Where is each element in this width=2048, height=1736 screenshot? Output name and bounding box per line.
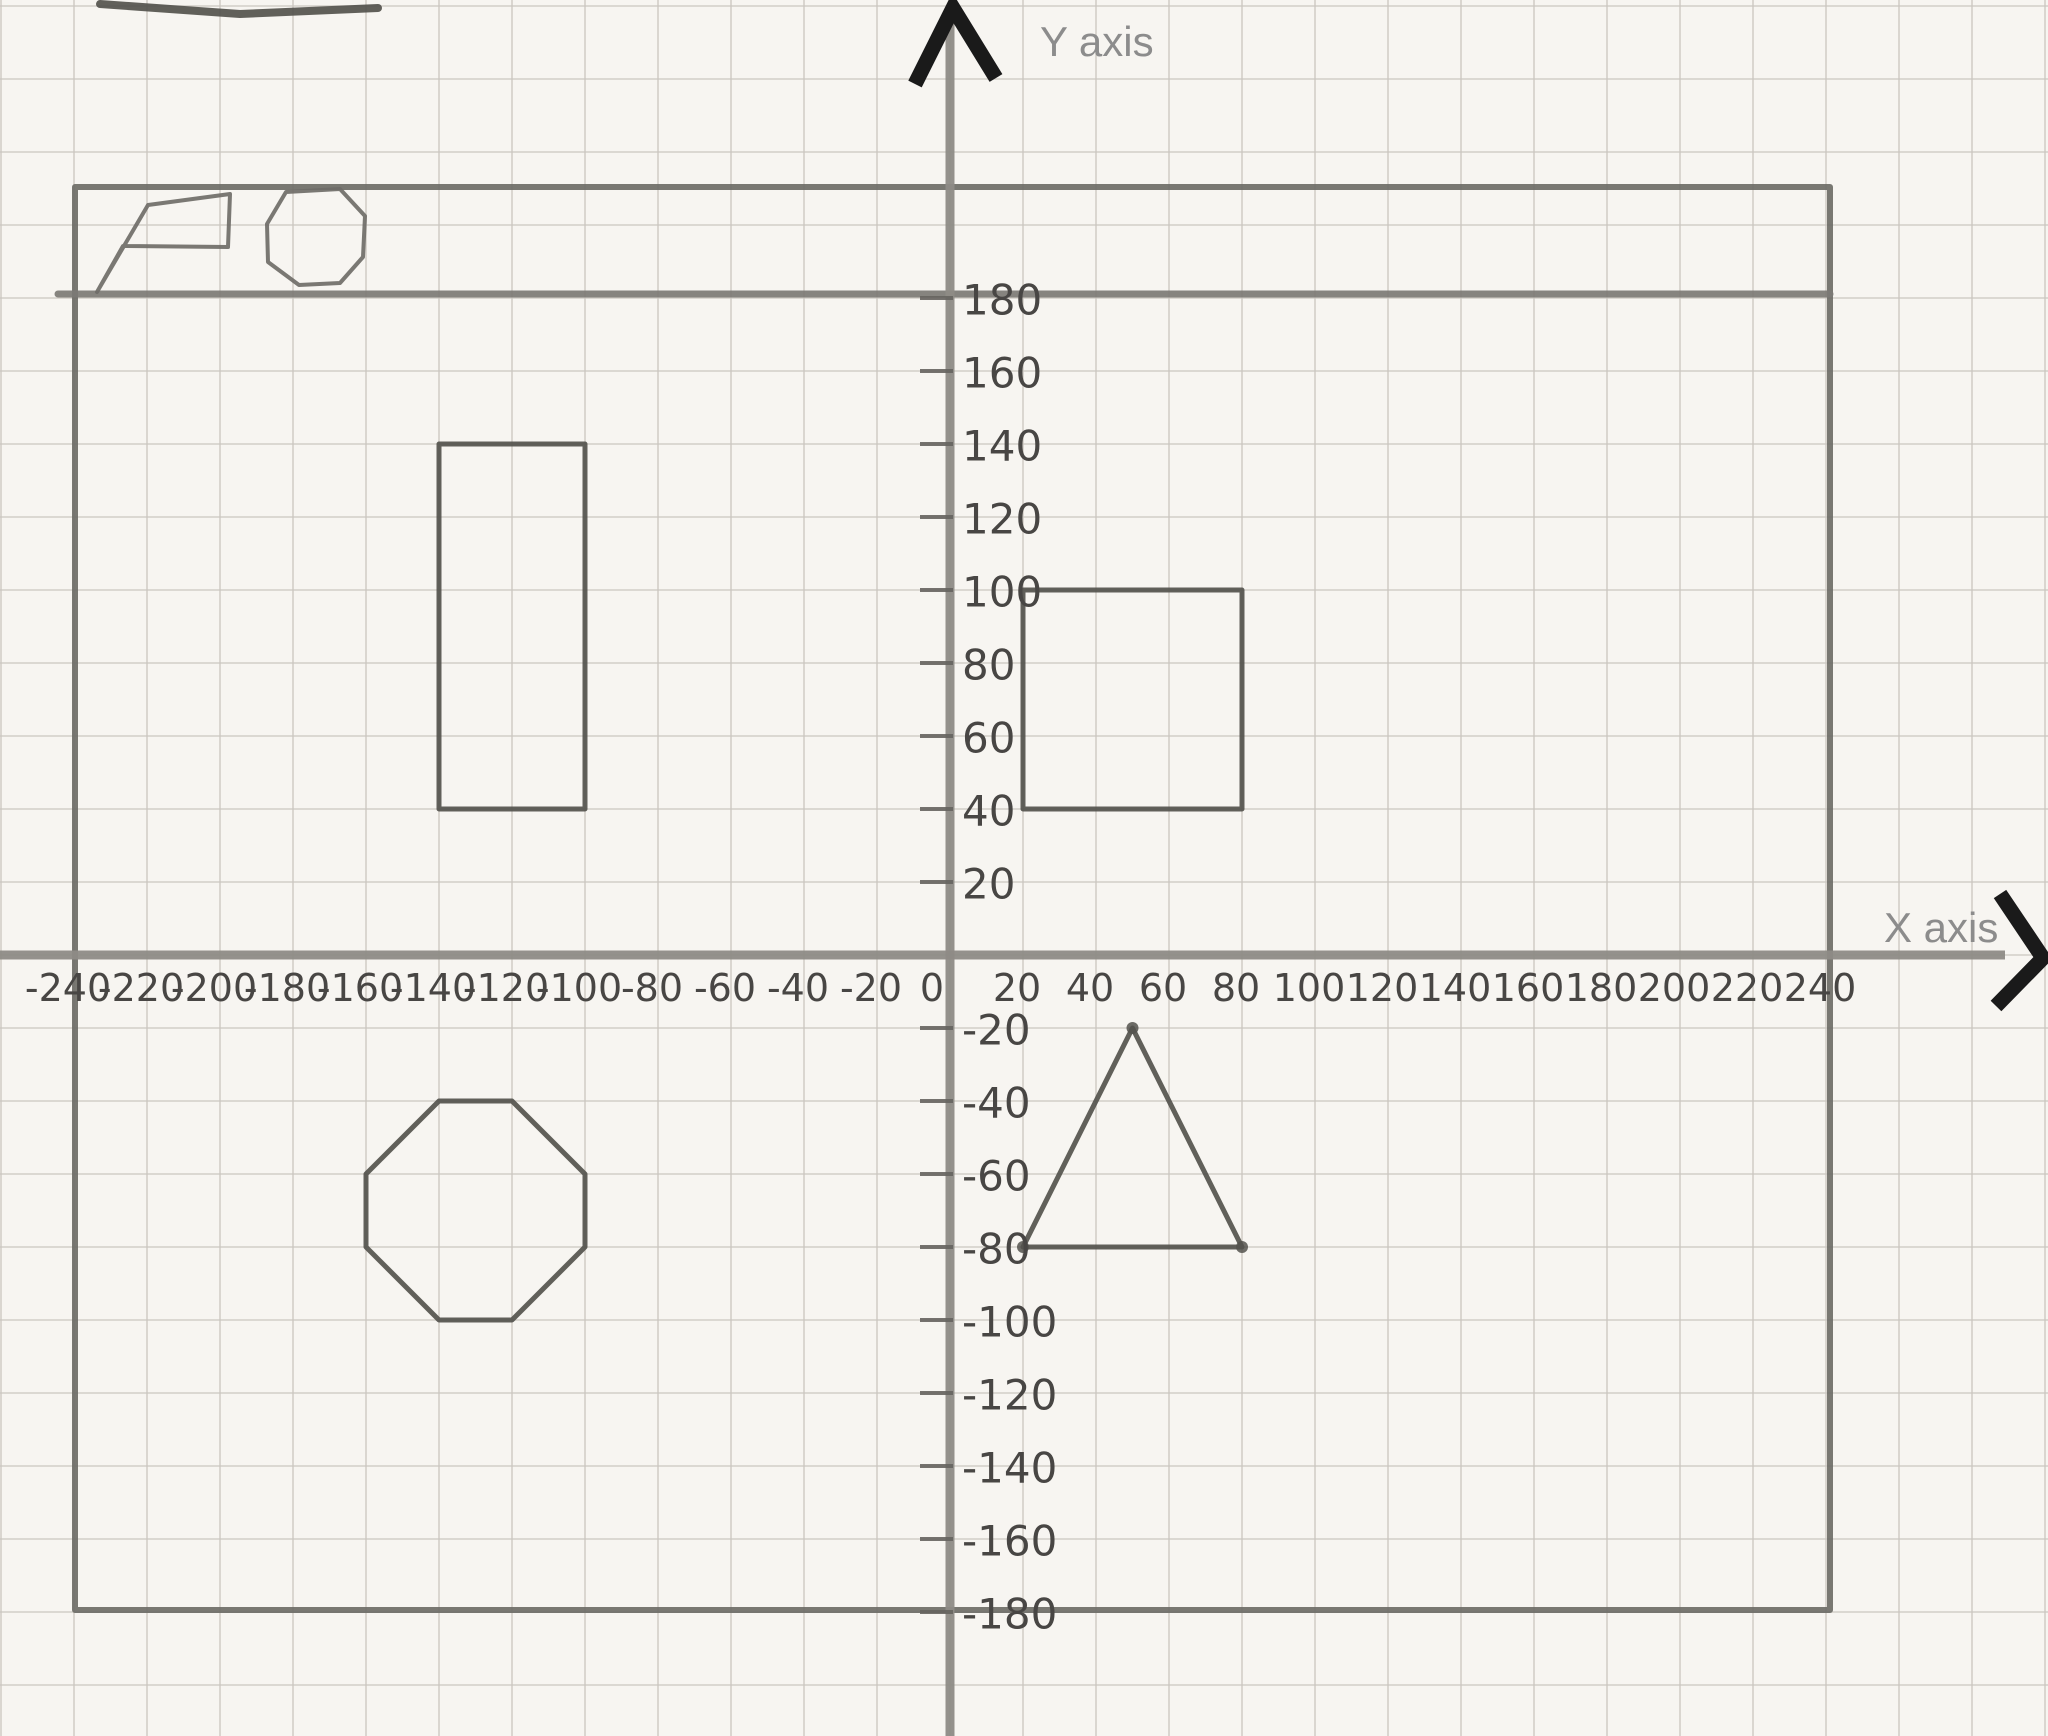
coordinate-plane-canvas: 18016014012010080604020-20-40-60-80-100-… [0,0,2048,1736]
y-tick-label: 160 [962,349,1042,398]
x-tick-label: 180 [1565,966,1638,1010]
x-tick-label: 40 [1066,966,1114,1010]
x-axis-arrowhead [1996,894,2043,1006]
x-tick-label: 80 [1212,966,1260,1010]
x-tick-label: -80 [621,966,683,1010]
square-quadrant1 [1023,590,1242,809]
x-tick-label: 240 [1784,966,1857,1010]
y-tick-label: -160 [962,1517,1057,1566]
y-tick-label: 100 [962,568,1042,617]
y-tick-label: 80 [962,641,1015,690]
x-axis-title: X axis [1884,904,1998,951]
triangle-quadrant4 [1023,1028,1242,1247]
graph-paper-scan: 18016014012010080604020-20-40-60-80-100-… [0,0,2048,1736]
x-tick-label: -60 [694,966,756,1010]
x-tick-label: 60 [1139,966,1187,1010]
x-tick-label: 140 [1419,966,1492,1010]
y-tick-label: -60 [962,1152,1031,1201]
octagon-quadrant3 [366,1101,585,1320]
y-axis-arrowhead [915,8,996,84]
y-tick-label: 180 [962,276,1042,325]
y-tick-label: -180 [962,1590,1057,1639]
x-tick-label: 120 [1346,966,1419,1010]
y-tick-label: -20 [962,1006,1031,1055]
x-tick-label: 0 [920,966,944,1010]
x-tick-label: -100 [536,966,622,1010]
y-tick-label: 120 [962,495,1042,544]
y-tick-label: -100 [962,1298,1057,1347]
x-tick-label: -40 [767,966,829,1010]
y-tick-label: 140 [962,422,1042,471]
doodle-octagon [267,189,365,285]
x-tick-label: 200 [1638,966,1711,1010]
axis-arrowheads [915,8,2043,1006]
x-tick-label: -20 [840,966,902,1010]
y-tick-label: 60 [962,714,1015,763]
y-tick-label: -120 [962,1371,1057,1420]
triangle-quadrant4-vertex-dot [1236,1241,1248,1253]
triangle-quadrant4-vertex-dot [1127,1022,1139,1034]
y-tick-label: 20 [962,860,1015,909]
y-tick-label: 40 [962,787,1015,836]
y-tick-label: -40 [962,1079,1031,1128]
x-tick-label: 160 [1492,966,1565,1010]
doodle-pentagon [97,194,230,292]
x-tick-label: 100 [1273,966,1346,1010]
y-tick-label: -140 [962,1444,1057,1493]
x-tick-label: 220 [1711,966,1784,1010]
y-axis-title: Y axis [1040,18,1154,65]
y-tick-label: -80 [962,1225,1031,1274]
x-tick-label: 20 [993,966,1041,1010]
